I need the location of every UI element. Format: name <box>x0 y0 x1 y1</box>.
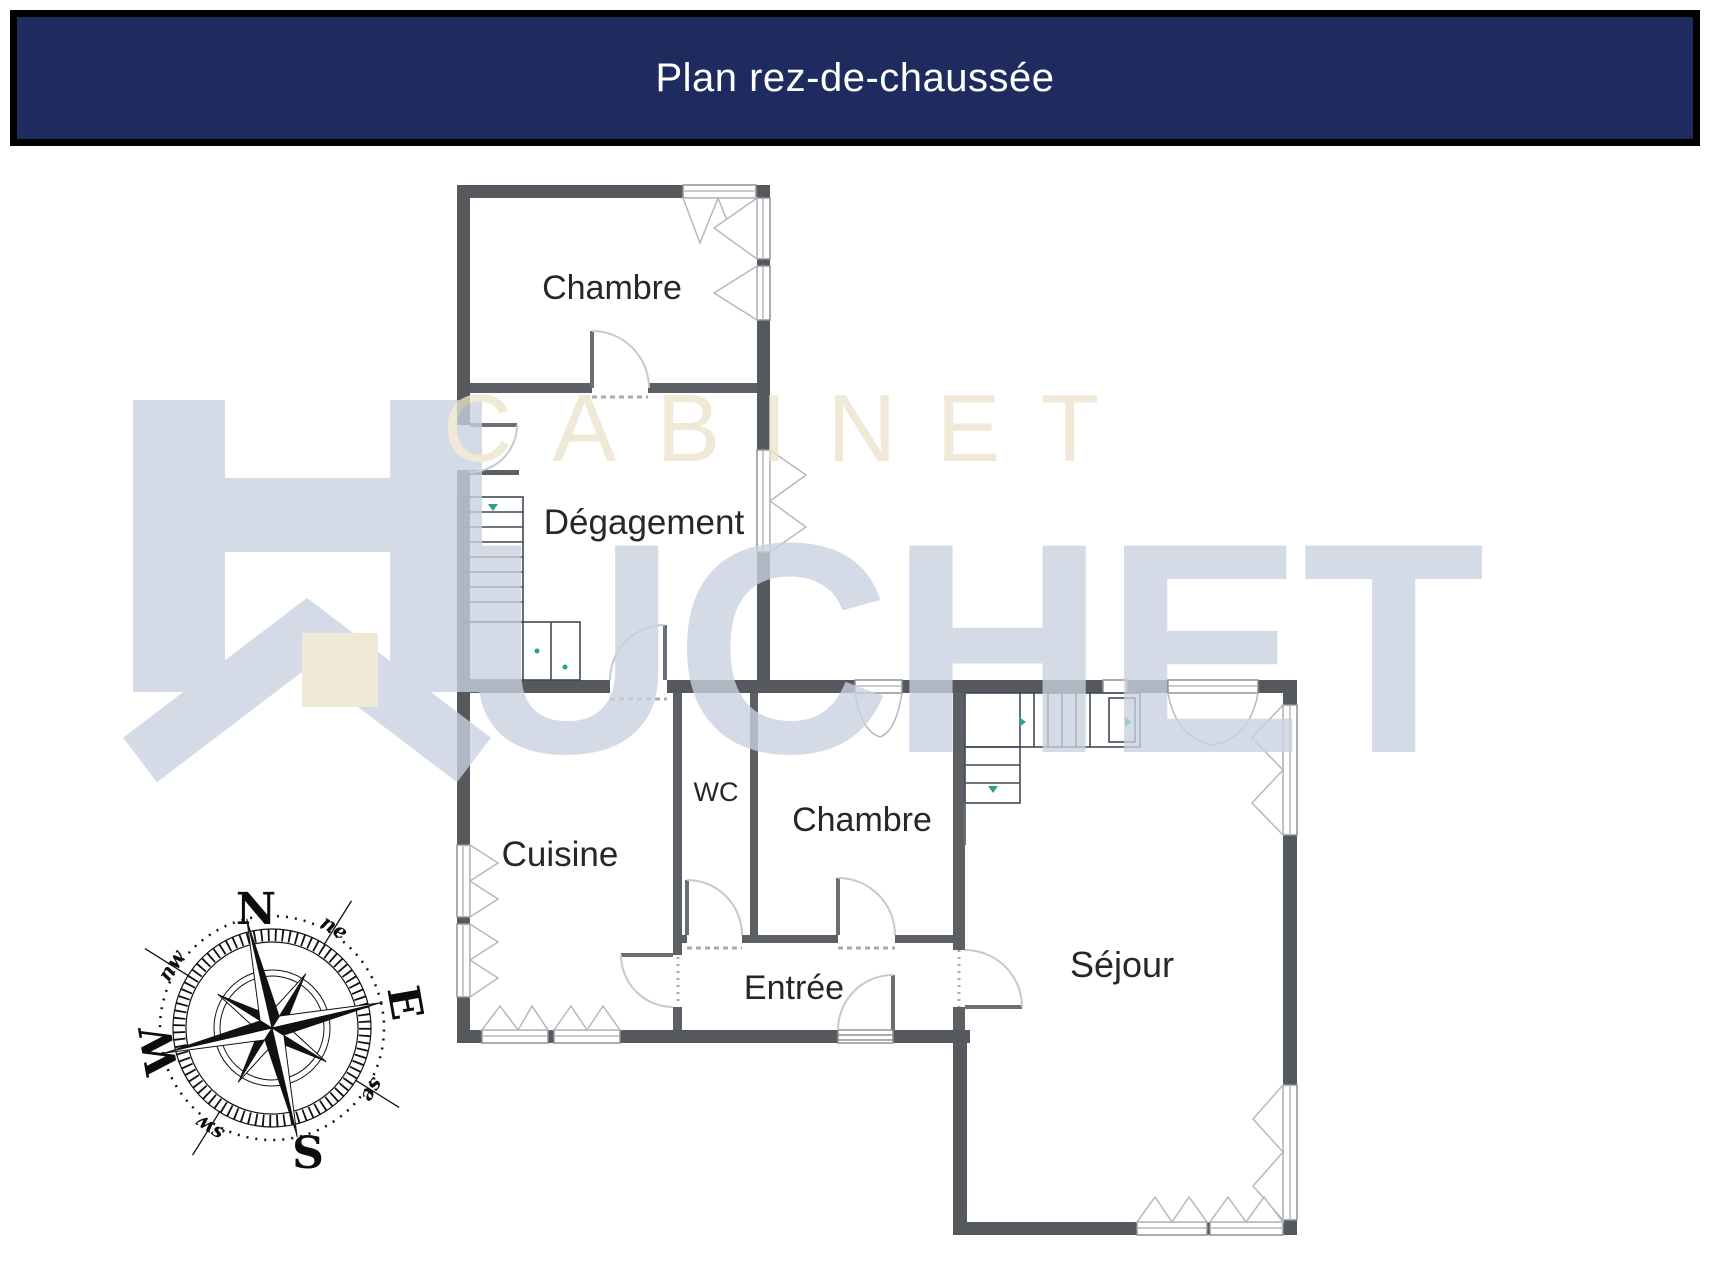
floorplan-svg: CABINET UCHET Chambre Dégagement Cuisine… <box>0 0 1710 1276</box>
compass-north-label: N <box>236 884 276 935</box>
huchet-logo-h <box>133 400 482 760</box>
label-chambre-nord: Chambre <box>542 269 682 307</box>
compass-rose: N S E W ne se sw nw <box>130 884 433 1179</box>
compass-west-label: W <box>130 1021 189 1080</box>
label-degagement: Dégagement <box>544 503 745 542</box>
page: Plan rez-de-chaussée <box>0 0 1710 1276</box>
compass-sw-label: sw <box>190 1111 228 1147</box>
compass-nw-label: nw <box>153 945 191 985</box>
watermark-cabinet: CABINET <box>443 375 1139 482</box>
watermark: CABINET UCHET <box>133 375 1485 816</box>
compass-se-label: se <box>356 1073 390 1107</box>
compass-south-label: S <box>292 1128 324 1179</box>
label-cuisine: Cuisine <box>502 835 619 874</box>
label-wc: WC <box>694 777 739 807</box>
compass-east-label: E <box>376 982 432 1024</box>
compass-ne-label: ne <box>317 910 353 945</box>
label-entree: Entrée <box>744 969 844 1007</box>
label-sejour: Séjour <box>1070 944 1174 985</box>
label-chambre-sud: Chambre <box>792 801 932 839</box>
logo-door-shape <box>302 633 378 707</box>
